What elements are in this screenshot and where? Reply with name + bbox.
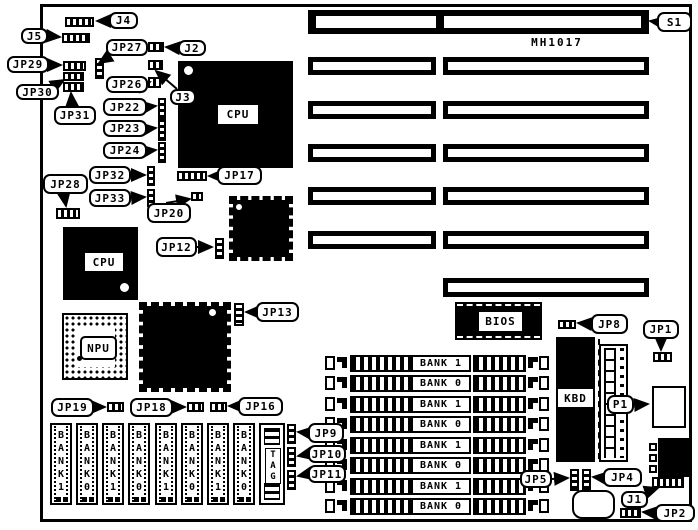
kbd-chip: KBD xyxy=(556,337,595,462)
dip-socket: B A N K 1 xyxy=(207,423,229,505)
chipset-qfp-small xyxy=(229,196,293,261)
simm-socket: BANK 1 xyxy=(325,355,549,372)
jumper-block xyxy=(234,303,244,326)
pin1-dot xyxy=(236,204,242,210)
isa-slot-opening xyxy=(313,106,431,114)
jumper-block xyxy=(158,142,166,163)
dip-notch xyxy=(187,497,199,502)
callout-p1: P1 xyxy=(607,395,634,414)
simm-clip-right xyxy=(539,499,549,513)
isa-slot xyxy=(308,187,436,205)
isa-slot xyxy=(308,57,436,75)
cpu-alt-chip: CPU xyxy=(63,227,138,300)
simm-latch-notch xyxy=(337,485,342,491)
jumper-block xyxy=(56,208,80,219)
isa-slot xyxy=(443,101,649,119)
isa-slot-opening xyxy=(448,236,644,244)
edge-connector xyxy=(658,438,691,477)
dip-bank-label: B A N K 1 xyxy=(104,429,122,494)
jumper-block xyxy=(652,477,684,488)
simm-chips-right xyxy=(473,396,526,413)
simm-chips-right xyxy=(473,437,526,454)
simm-latch-notch xyxy=(337,382,342,388)
simm-chips-right xyxy=(473,375,526,392)
jumper-block xyxy=(210,402,227,412)
simm-latch-notch xyxy=(533,423,538,429)
dip-socket: B A N K 0 xyxy=(181,423,203,505)
simm-bank-label: BANK 0 xyxy=(411,457,471,474)
board-model-label: MH1017 xyxy=(524,36,590,51)
simm-bank-label: BANK 0 xyxy=(411,416,471,433)
kbd-label: KBD xyxy=(557,388,594,408)
simm-clip-right xyxy=(539,438,549,452)
dip-bank-label: B A N K 1 xyxy=(157,429,175,494)
cpu-main-label: CPU xyxy=(217,104,259,125)
callout-jp23: JP23 xyxy=(103,120,147,137)
dip-notch xyxy=(134,497,146,502)
dip-bank-label: B A N K 0 xyxy=(183,429,201,494)
dip-notch xyxy=(239,497,251,502)
callout-jp32: JP32 xyxy=(89,166,131,184)
bios-dash-bottom xyxy=(457,336,540,338)
edge-connector-pin xyxy=(649,454,657,462)
jumper-block xyxy=(62,33,90,43)
isa-slot-opening xyxy=(316,16,436,28)
callout-s1: S1 xyxy=(657,12,692,32)
dip-socket: B A N K 1 xyxy=(102,423,124,505)
jumper-block xyxy=(582,469,591,491)
callout-jp33: JP33 xyxy=(89,189,131,207)
simm-latch-notch xyxy=(533,362,538,368)
tag-pads-bottom xyxy=(264,483,280,500)
callout-jp11: JP11 xyxy=(308,465,346,483)
callout-jp5: JP5 xyxy=(520,470,552,488)
simm-clip-right xyxy=(539,376,549,390)
simm-clip-left xyxy=(325,376,335,390)
isa-slot-opening xyxy=(448,62,644,70)
motherboard-diagram: MH1017 CPU CPU NPU BIOS KBD xyxy=(0,0,698,530)
isa-slot-opening xyxy=(448,106,644,114)
dip-bank-label: B A N K 1 xyxy=(209,429,227,494)
callout-jp30: JP30 xyxy=(16,84,59,100)
simm-chips-left xyxy=(350,457,411,474)
dip-bank-label: B A N K 0 xyxy=(235,429,253,494)
simm-bank-label: BANK 0 xyxy=(411,498,471,515)
jumper-block xyxy=(570,469,579,491)
callout-jp20: JP20 xyxy=(147,203,191,223)
simm-socket: BANK 1 xyxy=(325,478,549,495)
isa-slot xyxy=(443,278,649,297)
simm-socket: BANK 0 xyxy=(325,375,549,392)
isa-slot-opening xyxy=(448,192,644,200)
jumper-block xyxy=(653,352,672,362)
tag-label-text: T A G xyxy=(266,450,280,483)
callout-jp1: JP1 xyxy=(643,320,679,339)
jumper-block xyxy=(107,402,124,412)
dip-notch xyxy=(82,497,94,502)
cpu-alt-label: CPU xyxy=(84,252,124,272)
simm-chips-right xyxy=(473,498,526,515)
simm-chips-left xyxy=(350,375,411,392)
simm-chips-left xyxy=(350,498,411,515)
bios-label: BIOS xyxy=(478,311,523,332)
simm-clip-left xyxy=(325,356,335,370)
callout-j4: J4 xyxy=(109,12,138,29)
callout-jp13: JP13 xyxy=(256,302,299,322)
pin1-dot xyxy=(184,66,193,75)
jumper-block xyxy=(148,42,164,52)
callout-j3: J3 xyxy=(170,89,196,105)
callout-jp27: JP27 xyxy=(106,39,148,56)
isa-slot-opening xyxy=(448,283,644,292)
simm-bank-label: BANK 1 xyxy=(411,478,471,495)
simm-chips-right xyxy=(473,355,526,372)
jumper-block xyxy=(287,447,296,467)
tag-socket: T A G xyxy=(259,423,285,505)
isa-slot xyxy=(308,144,436,162)
dip-notch xyxy=(161,497,173,502)
callout-jp12: JP12 xyxy=(156,237,197,257)
simm-latch-notch xyxy=(337,362,342,368)
dip-socket: B A N K 1 xyxy=(155,423,177,505)
tag-label: T A G xyxy=(265,448,281,484)
dip-socket: B A N K 0 xyxy=(128,423,150,505)
chipset-qfp-large xyxy=(139,302,231,392)
bios-dash-top xyxy=(457,304,540,306)
npu-socket: NPU xyxy=(62,313,128,380)
isa-slot-opening xyxy=(313,149,431,157)
dip-bank-label: B A N K 1 xyxy=(52,429,70,494)
callout-jp8: JP8 xyxy=(591,314,628,334)
isa-slot xyxy=(443,187,649,205)
dip-socket: B A N K 0 xyxy=(76,423,98,505)
pin1-dot xyxy=(120,283,129,292)
simm-latch-notch xyxy=(337,403,342,409)
jumper-block xyxy=(177,171,207,181)
tag-pads-top xyxy=(264,428,280,445)
callout-jp9: JP9 xyxy=(308,423,344,443)
simm-chips-right xyxy=(473,416,526,433)
dip-socket: B A N K 0 xyxy=(233,423,255,505)
callout-jp22: JP22 xyxy=(103,98,147,116)
isa-slot xyxy=(443,144,649,162)
simm-chips-left xyxy=(350,396,411,413)
callout-jp10: JP10 xyxy=(308,445,346,463)
simm-chips-right xyxy=(473,478,526,495)
simm-bank-label: BANK 0 xyxy=(411,375,471,392)
jumper-block xyxy=(620,508,641,518)
simm-latch-notch xyxy=(533,403,538,409)
battery xyxy=(572,490,615,519)
dip-notch xyxy=(108,497,120,502)
dip-notch xyxy=(56,497,68,502)
bios-chip: BIOS xyxy=(455,302,542,340)
simm-chips-left xyxy=(350,355,411,372)
edge-connector-pin xyxy=(649,443,657,451)
simm-latch-notch xyxy=(533,505,538,511)
simm-latch-notch xyxy=(337,505,342,511)
jumper-block xyxy=(63,82,84,92)
jumper-block xyxy=(148,60,163,70)
callout-jp4: JP4 xyxy=(603,468,642,487)
isa-slot-opening xyxy=(313,62,431,70)
callout-jp17: JP17 xyxy=(217,166,262,185)
jumper-block xyxy=(287,424,296,444)
simm-clip-left xyxy=(325,397,335,411)
callout-jp2: JP2 xyxy=(655,504,695,522)
simm-latch-notch xyxy=(533,444,538,450)
jumper-block xyxy=(148,77,161,88)
simm-socket: BANK 0 xyxy=(325,457,549,474)
isa-slot-opening xyxy=(313,192,431,200)
jumper-block xyxy=(63,61,86,71)
power-connector xyxy=(652,386,686,428)
dip-bank-label: B A N K 0 xyxy=(130,429,148,494)
simm-socket: BANK 1 xyxy=(325,437,549,454)
isa-slot xyxy=(308,101,436,119)
isa-slot-opening xyxy=(313,236,431,244)
pin1-dot xyxy=(209,309,216,316)
isa-slot xyxy=(443,231,649,249)
isa-slot-opening xyxy=(444,16,641,28)
simm-bank-label: BANK 1 xyxy=(411,355,471,372)
dip-bank-label: B A N K 0 xyxy=(78,429,96,494)
npu-label: NPU xyxy=(80,336,117,360)
callout-jp26: JP26 xyxy=(106,76,148,93)
jumper-block xyxy=(191,192,203,201)
simm-bank-label: BANK 1 xyxy=(411,437,471,454)
simm-clip-left xyxy=(325,499,335,513)
callout-jp24: JP24 xyxy=(103,142,147,159)
callout-j1: J1 xyxy=(621,491,648,508)
isa-slot xyxy=(308,10,649,34)
jumper-block xyxy=(287,470,296,490)
edge-connector-pin xyxy=(649,465,657,473)
simm-latch-notch xyxy=(533,382,538,388)
jumper-block xyxy=(63,72,84,81)
jumper-block xyxy=(215,238,224,259)
simm-clip-right xyxy=(539,417,549,431)
simm-chips-left xyxy=(350,416,411,433)
callout-jp29: JP29 xyxy=(7,56,49,73)
isa-slot xyxy=(308,231,436,249)
simm-socket: BANK 1 xyxy=(325,396,549,413)
jumper-block xyxy=(65,17,94,27)
simm-clip-right xyxy=(539,356,549,370)
jumper-block xyxy=(158,98,166,120)
simm-chips-left xyxy=(350,478,411,495)
callout-j2: J2 xyxy=(178,40,206,56)
callout-j5: J5 xyxy=(21,28,48,44)
callout-jp28: JP28 xyxy=(43,174,88,194)
simm-chips-left xyxy=(350,437,411,454)
simm-chips-right xyxy=(473,457,526,474)
dip-socket: B A N K 1 xyxy=(50,423,72,505)
dip-notch xyxy=(213,497,225,502)
isa-slot xyxy=(443,57,649,75)
isa-slot-opening xyxy=(448,149,644,157)
jumper-block xyxy=(147,166,155,186)
simm-bank-label: BANK 1 xyxy=(411,396,471,413)
jumper-block xyxy=(558,320,576,329)
jumper-block xyxy=(158,120,166,141)
callout-jp16: JP16 xyxy=(238,397,283,416)
simm-socket: BANK 0 xyxy=(325,498,549,515)
callout-jp31: JP31 xyxy=(54,106,96,125)
callout-jp19: JP19 xyxy=(51,398,94,417)
cpu-main-chip: CPU xyxy=(178,61,293,168)
simm-clip-right xyxy=(539,397,549,411)
simm-socket: BANK 0 xyxy=(325,416,549,433)
jumper-block xyxy=(95,58,104,79)
callout-jp18: JP18 xyxy=(130,398,173,417)
jumper-block xyxy=(187,402,204,412)
